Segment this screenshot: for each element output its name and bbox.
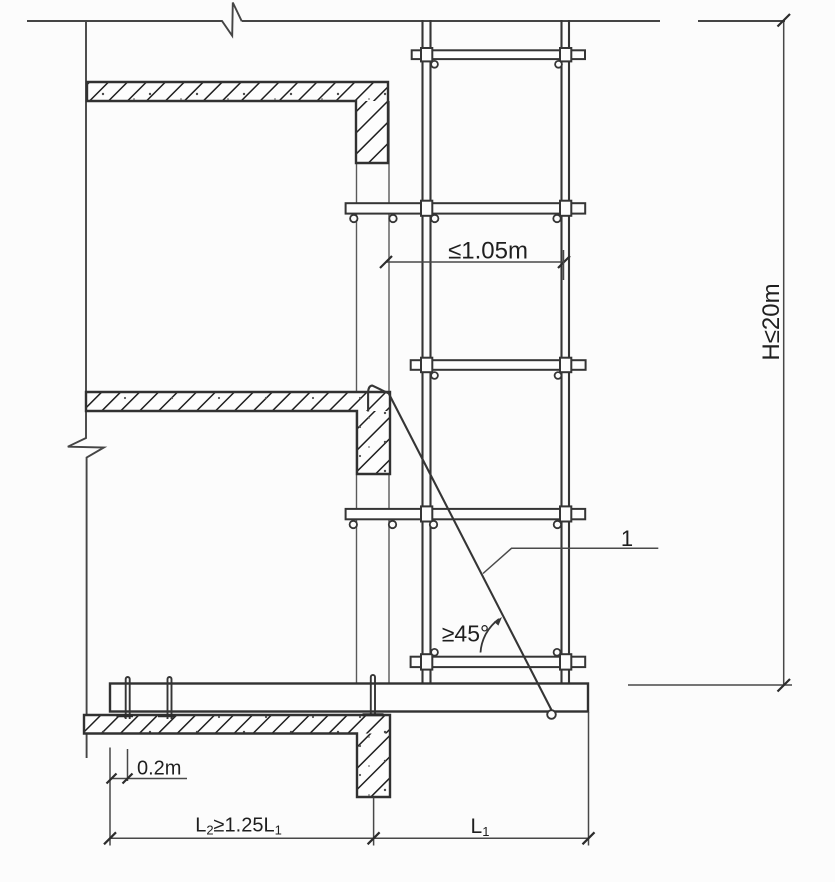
svg-text:1: 1 xyxy=(621,526,633,551)
svg-text:≤1.05m: ≤1.05m xyxy=(448,238,528,265)
svg-text:H≤20m: H≤20m xyxy=(758,283,785,360)
svg-text:0.2m: 0.2m xyxy=(137,758,181,780)
svg-text:≥45°: ≥45° xyxy=(442,621,489,647)
